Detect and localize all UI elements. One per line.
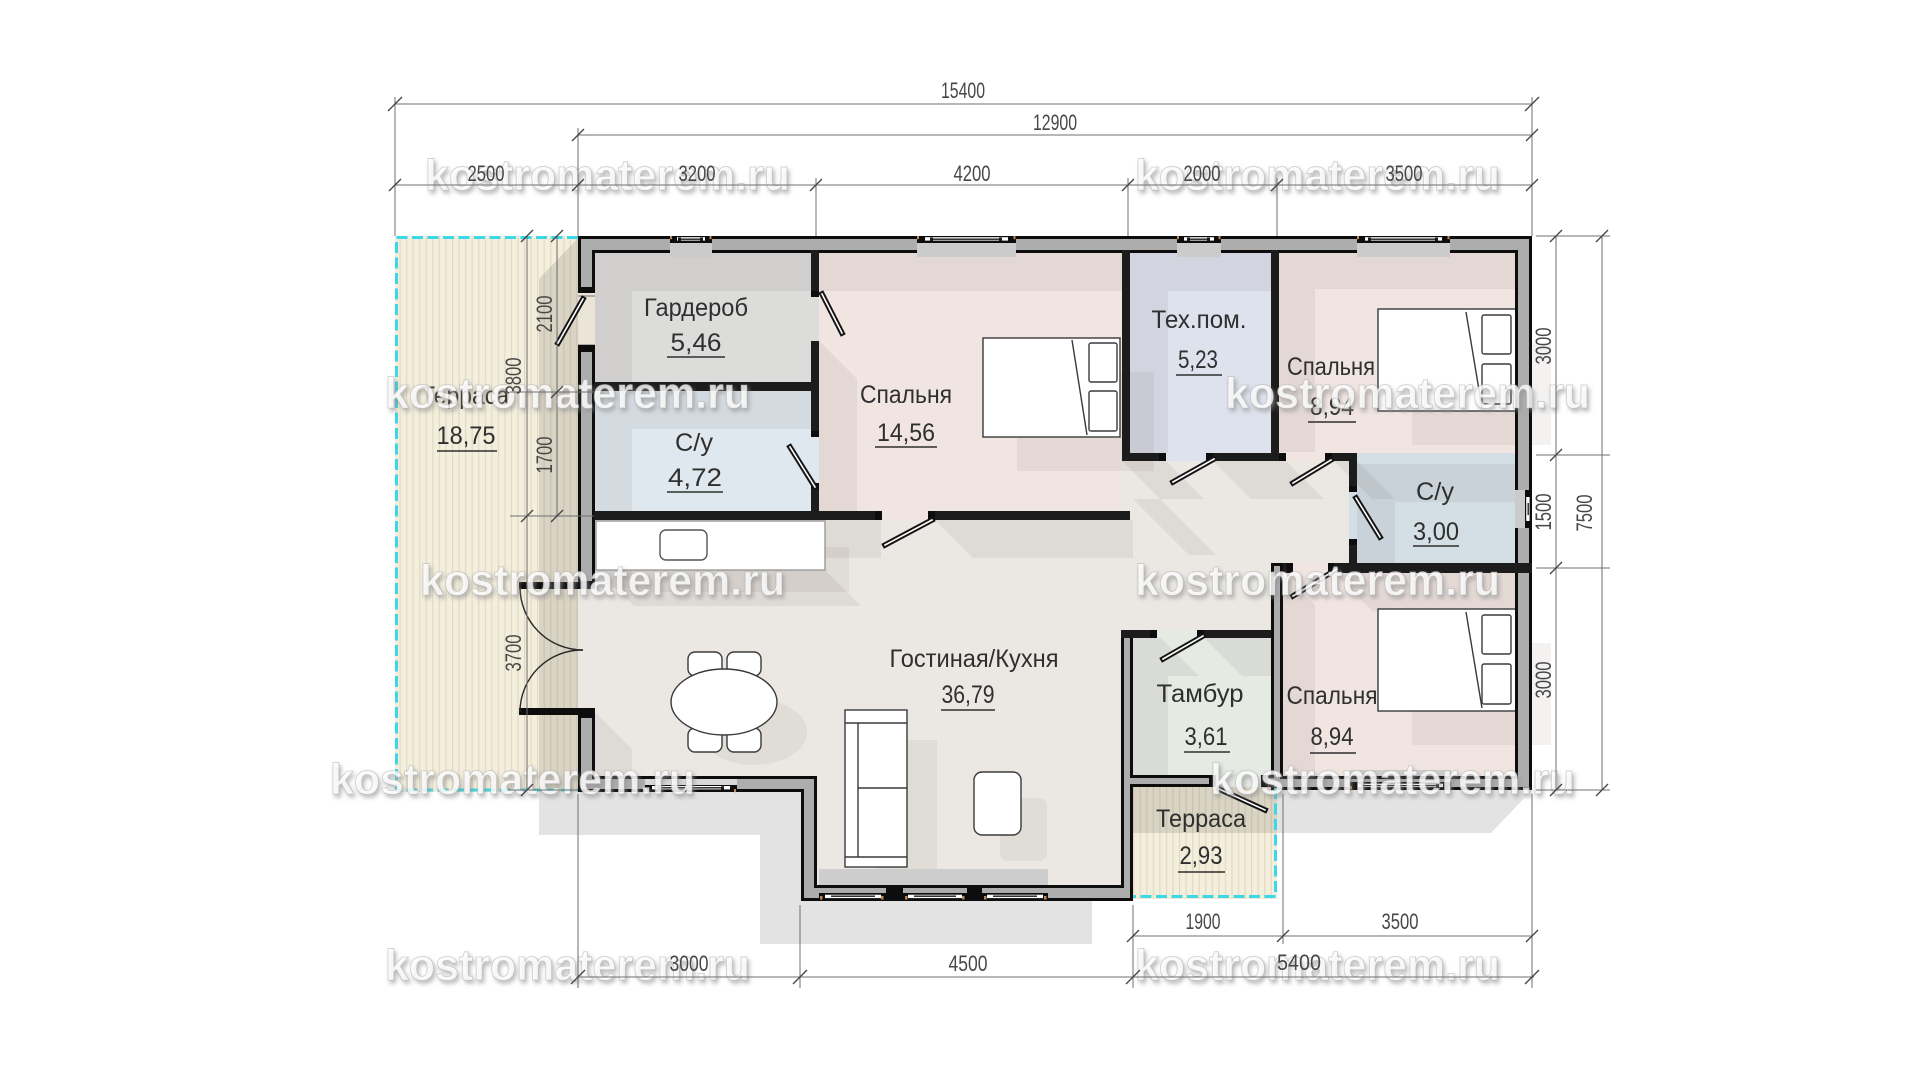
svg-text:7500: 7500	[1572, 495, 1597, 532]
svg-text:4,72: 4,72	[668, 464, 722, 492]
svg-text:Гостиная/Кухня: Гостиная/Кухня	[890, 645, 1059, 673]
svg-text:kostromaterem.ru: kostromaterem.ru	[1225, 369, 1590, 418]
svg-text:4500: 4500	[949, 951, 988, 976]
svg-text:3500: 3500	[1386, 161, 1423, 186]
svg-text:5400: 5400	[1277, 950, 1321, 975]
svg-text:kostromaterem.ru: kostromaterem.ru	[330, 755, 695, 804]
svg-text:3500: 3500	[1382, 909, 1419, 934]
svg-text:36,79: 36,79	[942, 681, 995, 709]
svg-text:12900: 12900	[1033, 110, 1077, 135]
svg-text:3800: 3800	[501, 358, 526, 395]
svg-text:18,75: 18,75	[437, 422, 496, 450]
svg-text:3000: 3000	[1531, 662, 1556, 699]
svg-text:3700: 3700	[501, 635, 526, 672]
svg-text:8,94: 8,94	[1311, 723, 1354, 751]
svg-text:2,93: 2,93	[1180, 842, 1223, 870]
svg-text:1900: 1900	[1186, 909, 1221, 934]
svg-text:3000: 3000	[670, 951, 709, 976]
svg-text:kostromaterem.ru: kostromaterem.ru	[1210, 755, 1575, 804]
svg-text:kostromaterem.ru: kostromaterem.ru	[420, 556, 785, 605]
svg-text:15400: 15400	[941, 78, 985, 103]
svg-text:2000: 2000	[1184, 161, 1221, 186]
svg-text:С/у: С/у	[675, 429, 714, 457]
svg-text:kostromaterem.ru: kostromaterem.ru	[1135, 556, 1500, 605]
svg-text:3,61: 3,61	[1185, 723, 1228, 751]
svg-text:2100: 2100	[532, 296, 557, 333]
svg-text:Тех.пом.: Тех.пом.	[1152, 306, 1247, 334]
svg-text:3,00: 3,00	[1413, 518, 1459, 546]
svg-text:Спальня: Спальня	[860, 381, 952, 409]
svg-text:Терраса: Терраса	[1156, 805, 1246, 833]
svg-text:1500: 1500	[1531, 494, 1556, 531]
svg-text:С/у: С/у	[1416, 478, 1455, 506]
svg-text:3200: 3200	[679, 161, 716, 186]
svg-text:14,56: 14,56	[877, 419, 935, 447]
svg-text:4200: 4200	[954, 161, 991, 186]
svg-text:Тамбур: Тамбур	[1157, 680, 1244, 708]
svg-text:Гардероб: Гардероб	[644, 294, 748, 322]
svg-text:1700: 1700	[532, 437, 557, 474]
svg-text:5,23: 5,23	[1178, 346, 1218, 374]
svg-text:5,46: 5,46	[671, 329, 722, 357]
svg-text:kostromaterem.ru: kostromaterem.ru	[385, 369, 750, 418]
svg-text:3000: 3000	[1531, 328, 1556, 365]
svg-text:Спальня: Спальня	[1287, 682, 1378, 710]
svg-text:2500: 2500	[468, 161, 505, 186]
